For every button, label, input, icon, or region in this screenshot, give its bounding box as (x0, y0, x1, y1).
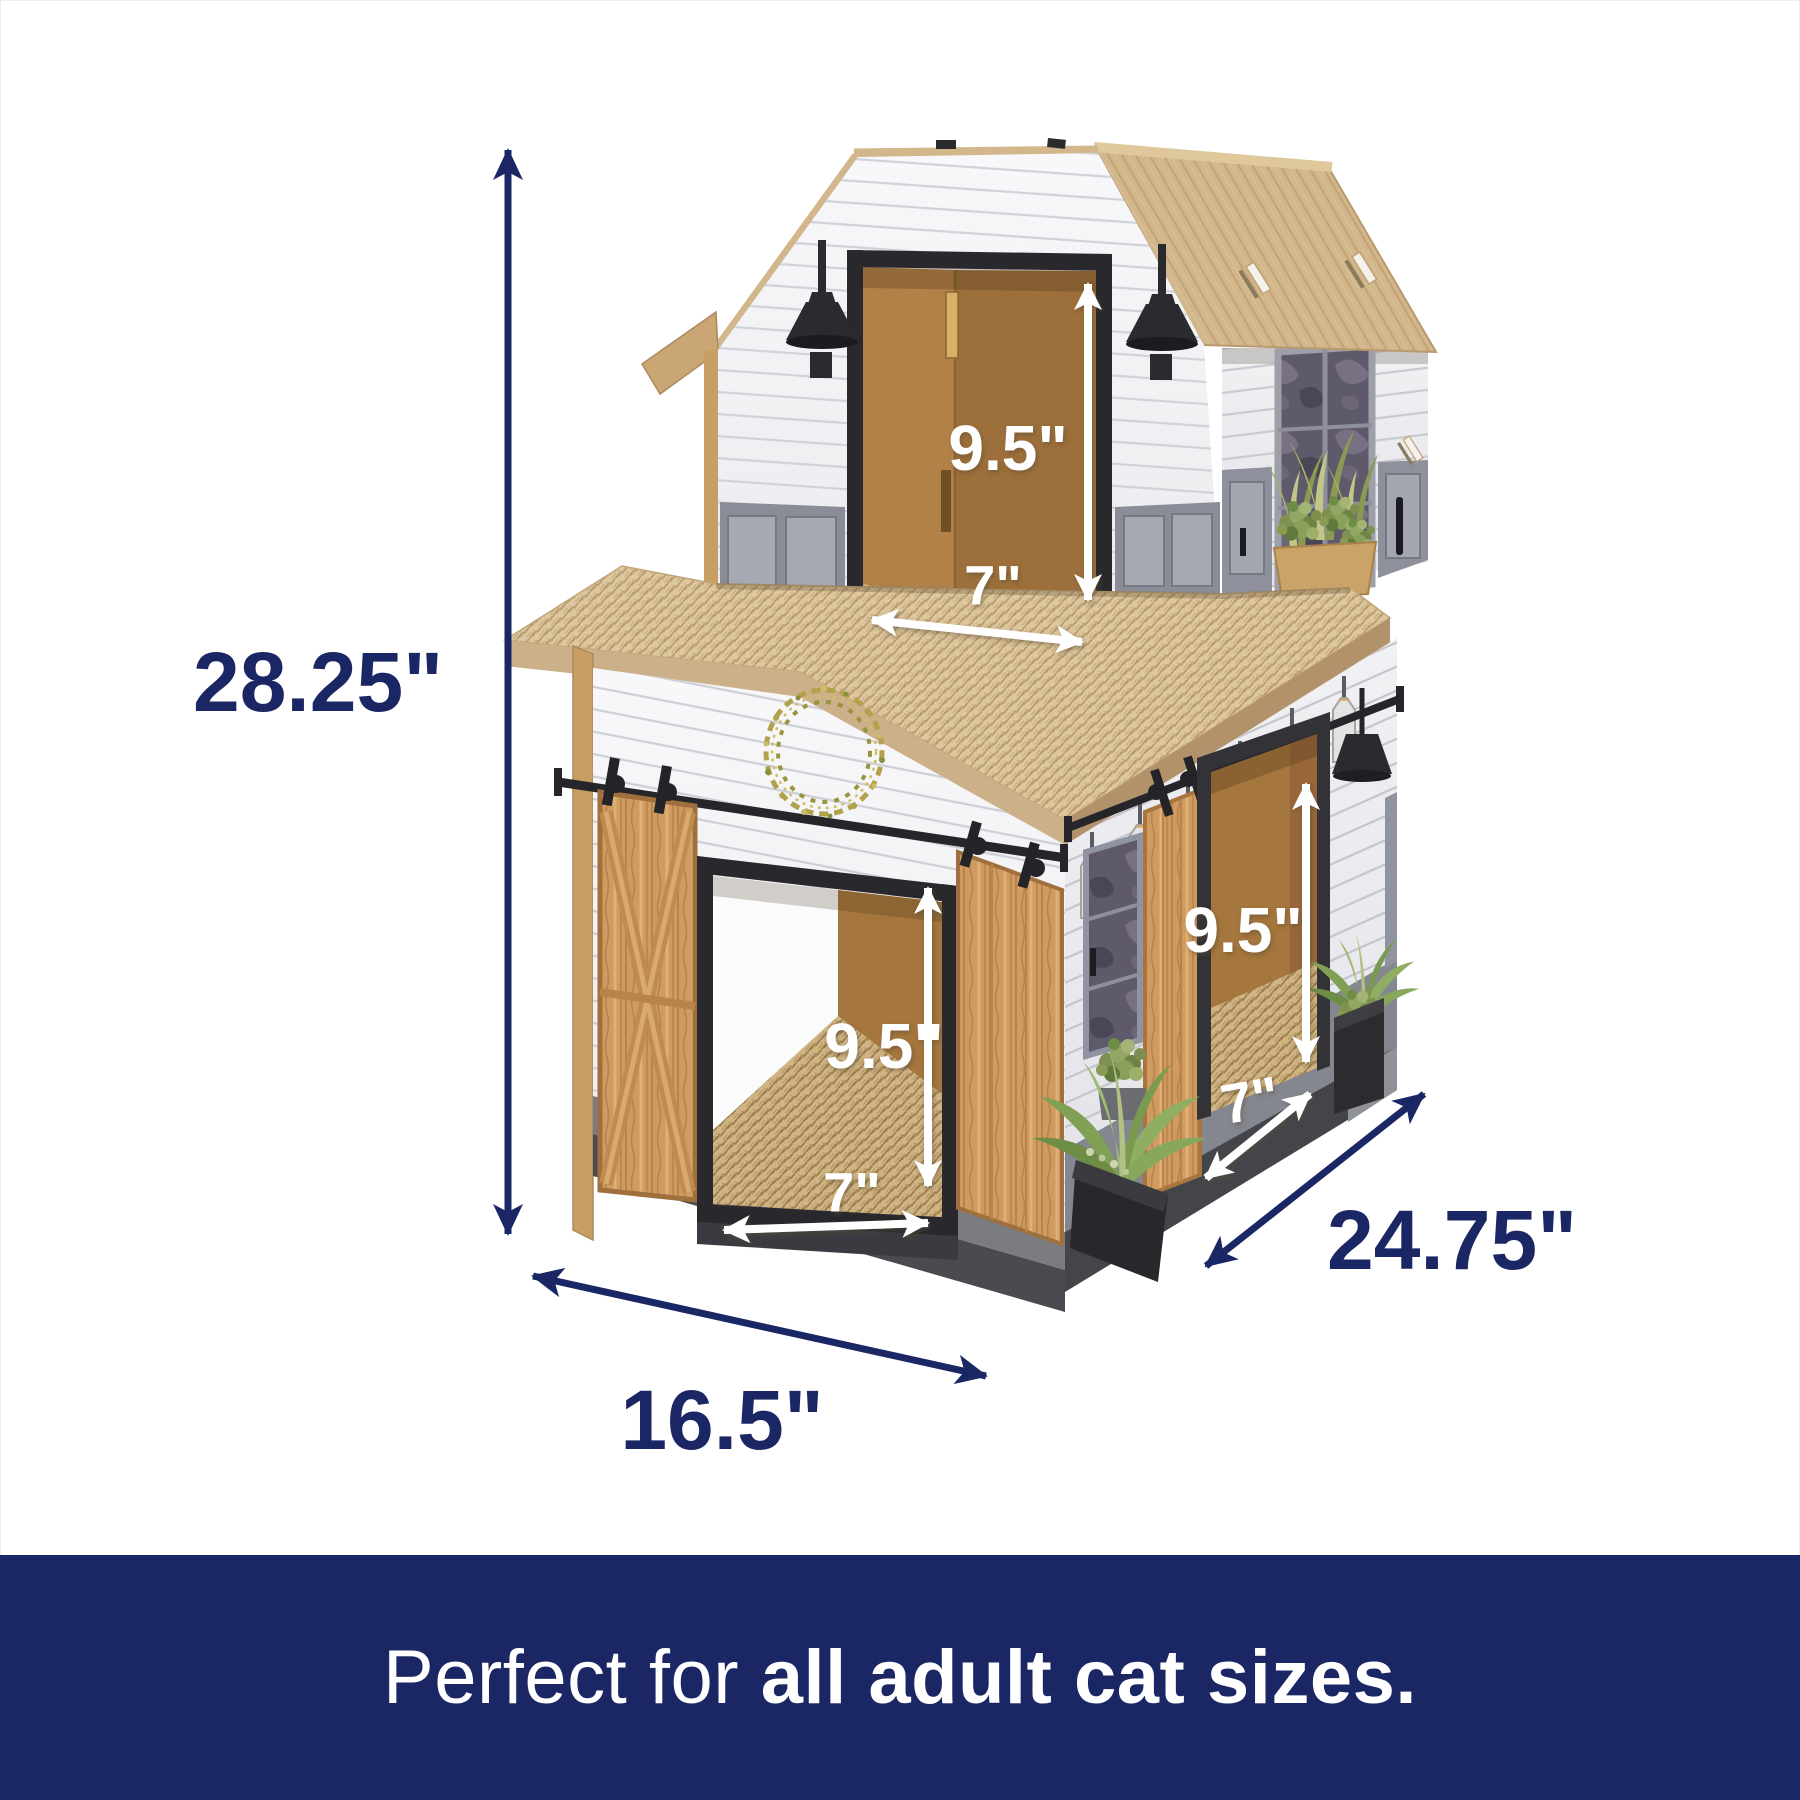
caption-prefix: Perfect for (383, 1635, 761, 1720)
barn-upper-side-face (1222, 346, 1428, 598)
loft-door-height-label: 9.5" (948, 412, 1067, 484)
base-width-arrow (533, 1276, 986, 1376)
caption-band: Perfect for all adult cat sizes. (0, 1555, 1800, 1800)
side-window (1086, 836, 1140, 1056)
front-door-height-label: 9.5" (824, 1010, 943, 1082)
caption-text: Perfect for all adult cat sizes. (383, 1634, 1417, 1721)
base-depth-label: 24.75" (1327, 1193, 1577, 1287)
side-door-width-label: 7" (1216, 1064, 1284, 1136)
side-door-height-label: 9.5" (1183, 894, 1302, 966)
cardboard-left-edge (573, 646, 593, 1240)
front-sliding-door-left (600, 757, 695, 1200)
side-trim-panel (1385, 792, 1397, 968)
loft-door-width-label: 7" (964, 554, 1022, 617)
overall-height-label: 28.25" (193, 635, 443, 729)
product-dimension-image: 9.5" 7" 9.5" 7" 9.5" 7" 28.25" 16.5" 24.… (0, 0, 1800, 1800)
cat-house-illustration: 9.5" 7" 9.5" 7" 9.5" 7" 28.25" 16.5" 24.… (0, 0, 1800, 1800)
front-door-width-label: 7" (823, 1161, 881, 1224)
front-sliding-door-right (958, 821, 1062, 1244)
base-width-label: 16.5" (620, 1373, 823, 1467)
caption-emphasis: all adult cat sizes. (761, 1635, 1417, 1720)
